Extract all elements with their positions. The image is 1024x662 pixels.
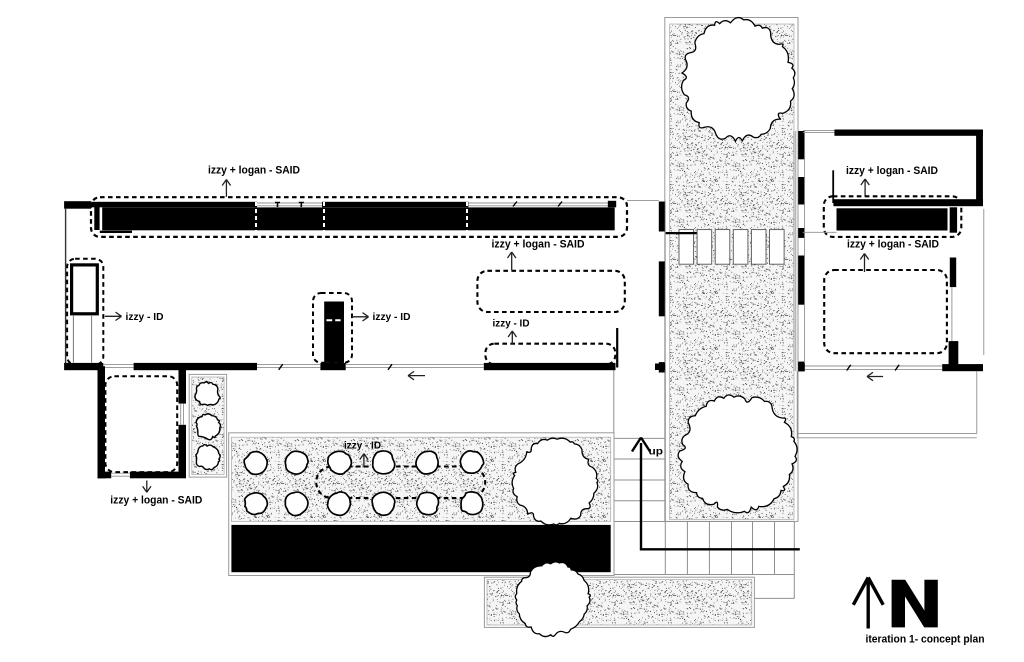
svg-text:izzy + logan - SAID: izzy + logan - SAID [492, 239, 585, 251]
svg-text:izzy - ID: izzy - ID [344, 441, 381, 452]
svg-text:izzy + logan - SAID: izzy + logan - SAID [846, 165, 938, 177]
svg-text:up: up [649, 447, 664, 458]
svg-text:izzy - ID: izzy - ID [373, 312, 411, 323]
svg-text:izzy + logan - SAID: izzy + logan - SAID [847, 239, 939, 251]
svg-text:izzy - ID: izzy - ID [493, 318, 530, 329]
svg-text:iteration 1- concept plan: iteration 1- concept plan [866, 634, 985, 646]
svg-text:izzy - ID: izzy - ID [126, 312, 164, 323]
svg-text:izzy + logan - SAID: izzy + logan - SAID [208, 165, 300, 177]
svg-text:izzy + logan - SAID: izzy + logan - SAID [110, 495, 202, 507]
